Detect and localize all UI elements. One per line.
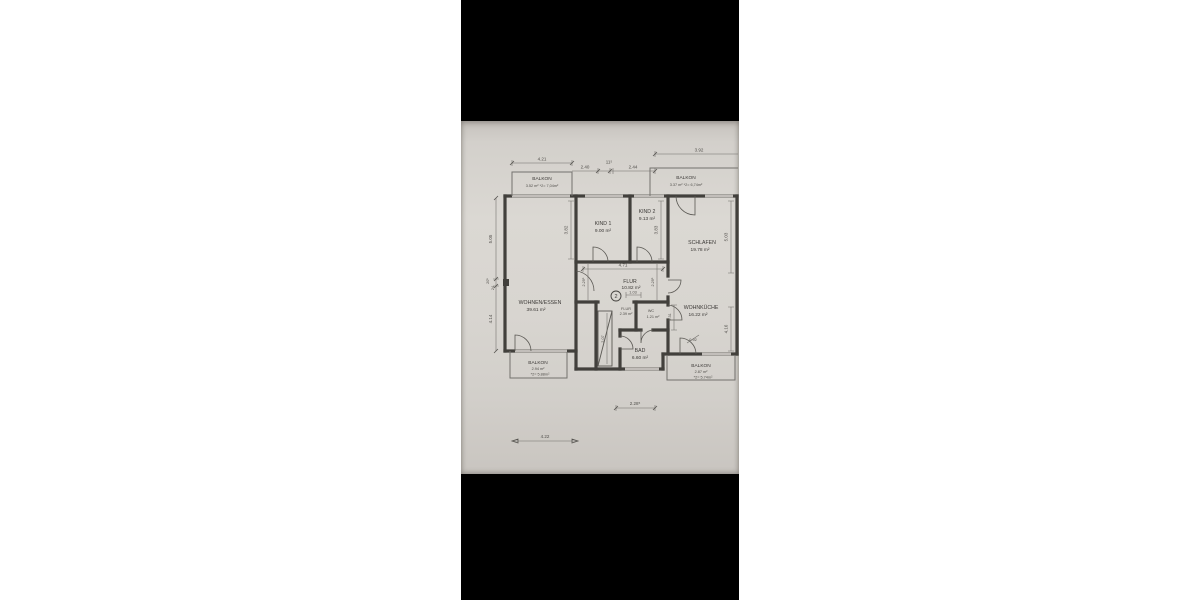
- balcony-top-right-rail: [650, 168, 738, 196]
- wohnen-balcony-door: [515, 335, 531, 351]
- dimension-labels: 4.21 2.40 11⁵ 2.44 3.92 5.05 20⁵ 24 4.14…: [486, 148, 729, 440]
- dim-schlafen-h: 5.03: [724, 232, 729, 241]
- dim-left3: 24: [491, 286, 495, 290]
- balkon-tr-area: 3.37 m² *2= 6,74m²: [670, 183, 703, 187]
- dim-flur-w: 4.71: [619, 263, 628, 268]
- dim-kueche-h: 4.16: [724, 324, 729, 333]
- dim-left4: 4.14: [488, 314, 493, 323]
- room-bad: BAD: [635, 348, 646, 354]
- schlafen-balcony-door: [676, 196, 695, 215]
- dim-flur-s: 1.03: [629, 291, 636, 295]
- wc-door: [641, 330, 653, 343]
- room-wc-area: 1.21 m²: [647, 315, 661, 319]
- floor-plan-drawing: 2 WOHNEN/ESSEN 39.61 m² KIND 1 9.00 m² K…: [461, 121, 739, 474]
- floor-plan-paper: 2 WOHNEN/ESSEN 39.61 m² KIND 1 9.00 m² K…: [461, 121, 739, 474]
- dim-kind2-h: 3.83: [654, 225, 659, 234]
- balkon-bl: BALKON: [528, 360, 548, 366]
- balkon-bl-area: 2.94 m²: [532, 367, 546, 371]
- dim-door-w: 0.92: [689, 338, 696, 342]
- walls: [503, 196, 737, 369]
- room-bad-area: 6.60 m²: [632, 355, 649, 361]
- room-wc: WC: [648, 309, 655, 313]
- room-kind1-area: 9.00 m²: [595, 228, 612, 234]
- dim-top2: 2.40: [581, 165, 590, 170]
- dim-left2: 20⁵: [486, 278, 490, 284]
- room-flur: FLUR: [623, 279, 637, 285]
- room-kueche: WOHNKÜCHE: [684, 304, 719, 311]
- dim-bottom-left: 4.22: [541, 434, 550, 439]
- dim-wc-h: 1.31: [668, 313, 672, 320]
- room-kind1: KIND 1: [595, 221, 612, 227]
- dim-left1: 5.05: [488, 234, 493, 243]
- balkon-bl-double: *2= 5.88m²: [531, 373, 550, 377]
- balkon-tl: BALKON: [532, 176, 552, 182]
- kind2-door: [637, 247, 652, 262]
- marker-label: 2: [614, 294, 617, 300]
- bad-door: [620, 336, 633, 349]
- dim-corridor-h: 2.07: [601, 335, 605, 342]
- balkon-br: BALKON: [691, 363, 711, 369]
- dim-bottom-mid: 2.28⁵: [630, 401, 641, 406]
- entrance-marker: 2: [611, 291, 621, 301]
- dim-top3: 11⁵: [606, 160, 613, 165]
- room-kueche-area: 16.22 m²: [689, 312, 708, 318]
- dim-top5: 3.92: [695, 148, 704, 153]
- balkon-br-double: *2= 5.74m²: [694, 376, 713, 380]
- balkon-tr: BALKON: [676, 175, 696, 181]
- dim-top4: 2.44: [629, 165, 638, 170]
- room-schlafen-area: 19.78 m²: [691, 247, 710, 253]
- balcony-rails: [510, 168, 738, 380]
- dim-flur-hl: 2.29⁵: [582, 277, 586, 286]
- dim-kind1-h: 3.82: [564, 225, 569, 234]
- kind1-door: [593, 247, 608, 262]
- room-flur2: FLUR: [621, 307, 631, 311]
- photo-viewer-letterbox: 2 WOHNEN/ESSEN 39.61 m² KIND 1 9.00 m² K…: [461, 0, 739, 600]
- room-schlafen: SCHLAFEN: [688, 240, 716, 246]
- schlafen-door: [668, 280, 681, 293]
- room-wohnen: WOHNEN/ESSEN: [519, 300, 562, 306]
- dim-top1: 4.21: [538, 157, 547, 162]
- room-flur2-area: 2.39 m²: [620, 312, 634, 316]
- balkon-tl-area: 3.52 m² *2= 7,04m²: [526, 184, 559, 188]
- room-kind2-area: 9.13 m²: [639, 216, 656, 222]
- dim-flur-hr: 2.29⁵: [651, 277, 655, 286]
- wall-notch: [503, 279, 509, 286]
- room-wohnen-area: 39.61 m²: [527, 307, 546, 313]
- balkon-br-area: 2.87 m²: [695, 370, 709, 374]
- room-kind2: KIND 2: [639, 209, 656, 215]
